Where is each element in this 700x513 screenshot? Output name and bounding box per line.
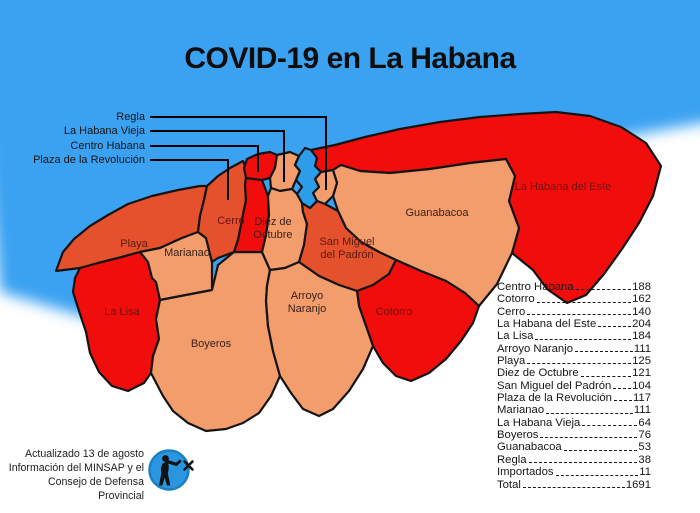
stat-row: Diez de Octubre121: [497, 367, 651, 379]
infographic-canvas: Playa Marianao La Lisa Boyeros Cerro Die…: [0, 0, 700, 513]
stat-row: Total1691: [497, 479, 651, 491]
map-label-san-miguel-1: San Miguel: [319, 236, 374, 248]
map-label-diez-de-octubre-2: Octubre: [253, 229, 292, 241]
leader-dashes: [614, 400, 632, 401]
map-label-arroyo-naranjo-2: Naranjo: [288, 303, 327, 315]
stat-name: Marianao: [497, 404, 544, 416]
stat-row: Importados11: [497, 466, 651, 478]
attribution-line-3: Consejo de Defensa Provincial: [2, 475, 144, 503]
stat-row: Marianao111: [497, 404, 651, 416]
stat-value: 38: [638, 454, 651, 466]
map-label-diez-de-octubre-1: Diez de: [254, 216, 291, 228]
map-label-cotorro: Cotorro: [376, 306, 413, 318]
map-label-habana-del-este: La Habana del Este: [515, 181, 612, 193]
map-label-marianao: Marianao: [164, 247, 210, 259]
stat-value: 204: [632, 318, 651, 330]
map-label-boyeros: Boyeros: [191, 338, 232, 350]
leader-dashes: [576, 289, 632, 290]
callout-label-plaza: Plaza de la Revolución: [0, 154, 145, 167]
stat-row: Plaza de la Revolución117: [497, 392, 651, 404]
stat-row: Playa125: [497, 355, 651, 367]
stat-name: Boyeros: [497, 429, 538, 441]
stat-value: 76: [638, 429, 651, 441]
map-label-la-lisa: La Lisa: [104, 306, 140, 318]
map-label-arroyo-naranjo-1: Arroyo: [291, 290, 323, 302]
map-label-cerro: Cerro: [217, 215, 245, 227]
attribution-line-1: Actualizado 13 de agosto: [2, 447, 144, 461]
stat-value: 111: [634, 404, 651, 416]
stat-name: Cotorro: [497, 293, 535, 305]
leader-dashes: [535, 339, 631, 340]
callout-label-la-habana-vieja: La Habana Vieja: [0, 125, 145, 138]
stat-row: Cerro140: [497, 306, 651, 318]
leader-dashes: [523, 487, 625, 488]
stat-name: Arroyo Naranjo: [497, 343, 573, 355]
leader-dashes: [527, 363, 631, 364]
stat-name: Plaza de la Revolución: [497, 392, 612, 404]
stat-value: 140: [632, 306, 651, 318]
stat-value: 162: [632, 293, 651, 305]
stat-row: Cotorro162: [497, 293, 651, 305]
stat-value: 121: [632, 367, 651, 379]
stat-value: 111: [634, 343, 651, 355]
stat-row: La Habana Vieja64: [497, 417, 651, 429]
stat-value: 64: [638, 417, 651, 429]
stat-row: Arroyo Naranjo111: [497, 343, 651, 355]
leader-dashes: [546, 413, 633, 414]
bay-habana: [295, 148, 321, 208]
stat-row: Regla38: [497, 454, 651, 466]
stat-row: Centro Habana188: [497, 281, 651, 293]
civil-defense-logo: [150, 451, 193, 490]
stat-value: 104: [632, 380, 651, 392]
callout-label-regla: Regla: [0, 111, 145, 124]
stat-name: Cerro: [497, 306, 525, 318]
leader-dashes: [581, 376, 632, 377]
leader-dashes: [575, 351, 633, 352]
stat-name: Centro Habana: [497, 281, 574, 293]
leader-dashes: [529, 462, 638, 463]
stat-row: Guanabacoa53: [497, 441, 651, 453]
stat-row: Boyeros76: [497, 429, 651, 441]
stat-name: La Habana Vieja: [497, 417, 580, 429]
stat-name: Guanabacoa: [497, 441, 562, 453]
leader-dashes: [537, 302, 631, 303]
region-la-lisa: [73, 252, 160, 391]
stat-name: Diez de Octubre: [497, 367, 579, 379]
stat-value: 184: [632, 330, 651, 342]
callout-label-centro-habana: Centro Habana: [0, 140, 145, 153]
stat-value: 11: [639, 466, 651, 478]
stats-list: Centro Habana188 Cotorro162 Cerro140 La …: [497, 281, 651, 491]
stat-name: La Habana del Este: [497, 318, 596, 330]
stat-row: La Lisa184: [497, 330, 651, 342]
stat-row: San Miguel del Padrón104: [497, 380, 651, 392]
leader-dashes: [582, 425, 637, 426]
stat-value: 188: [632, 281, 651, 293]
stat-name: Regla: [497, 454, 527, 466]
stat-row: La Habana del Este204: [497, 318, 651, 330]
stat-value: 125: [632, 355, 651, 367]
attribution-line-2: Información del MINSAP y el: [2, 461, 144, 475]
stat-name: San Miguel del Padrón: [497, 380, 611, 392]
stat-name: Total: [497, 479, 521, 491]
stat-name: La Lisa: [497, 330, 533, 342]
stat-value: 117: [633, 392, 651, 404]
leader-dashes: [527, 314, 631, 315]
stat-value: 53: [638, 441, 651, 453]
leader-dashes: [540, 437, 637, 438]
leader-dashes: [564, 450, 638, 451]
leader-dashes: [556, 475, 639, 476]
leader-dashes: [598, 326, 631, 327]
stat-value: 1691: [626, 479, 651, 491]
attribution: Actualizado 13 de agosto Información del…: [2, 447, 144, 503]
leader-dashes: [613, 388, 631, 389]
map-label-guanabacoa: Guanabacoa: [406, 207, 470, 219]
map-label-san-miguel-2: del Padrón: [320, 249, 373, 261]
stat-name: Playa: [497, 355, 525, 367]
stat-name: Importados: [497, 466, 554, 478]
page-title: COVID-19 en La Habana: [0, 42, 700, 76]
map-label-playa: Playa: [120, 238, 148, 250]
